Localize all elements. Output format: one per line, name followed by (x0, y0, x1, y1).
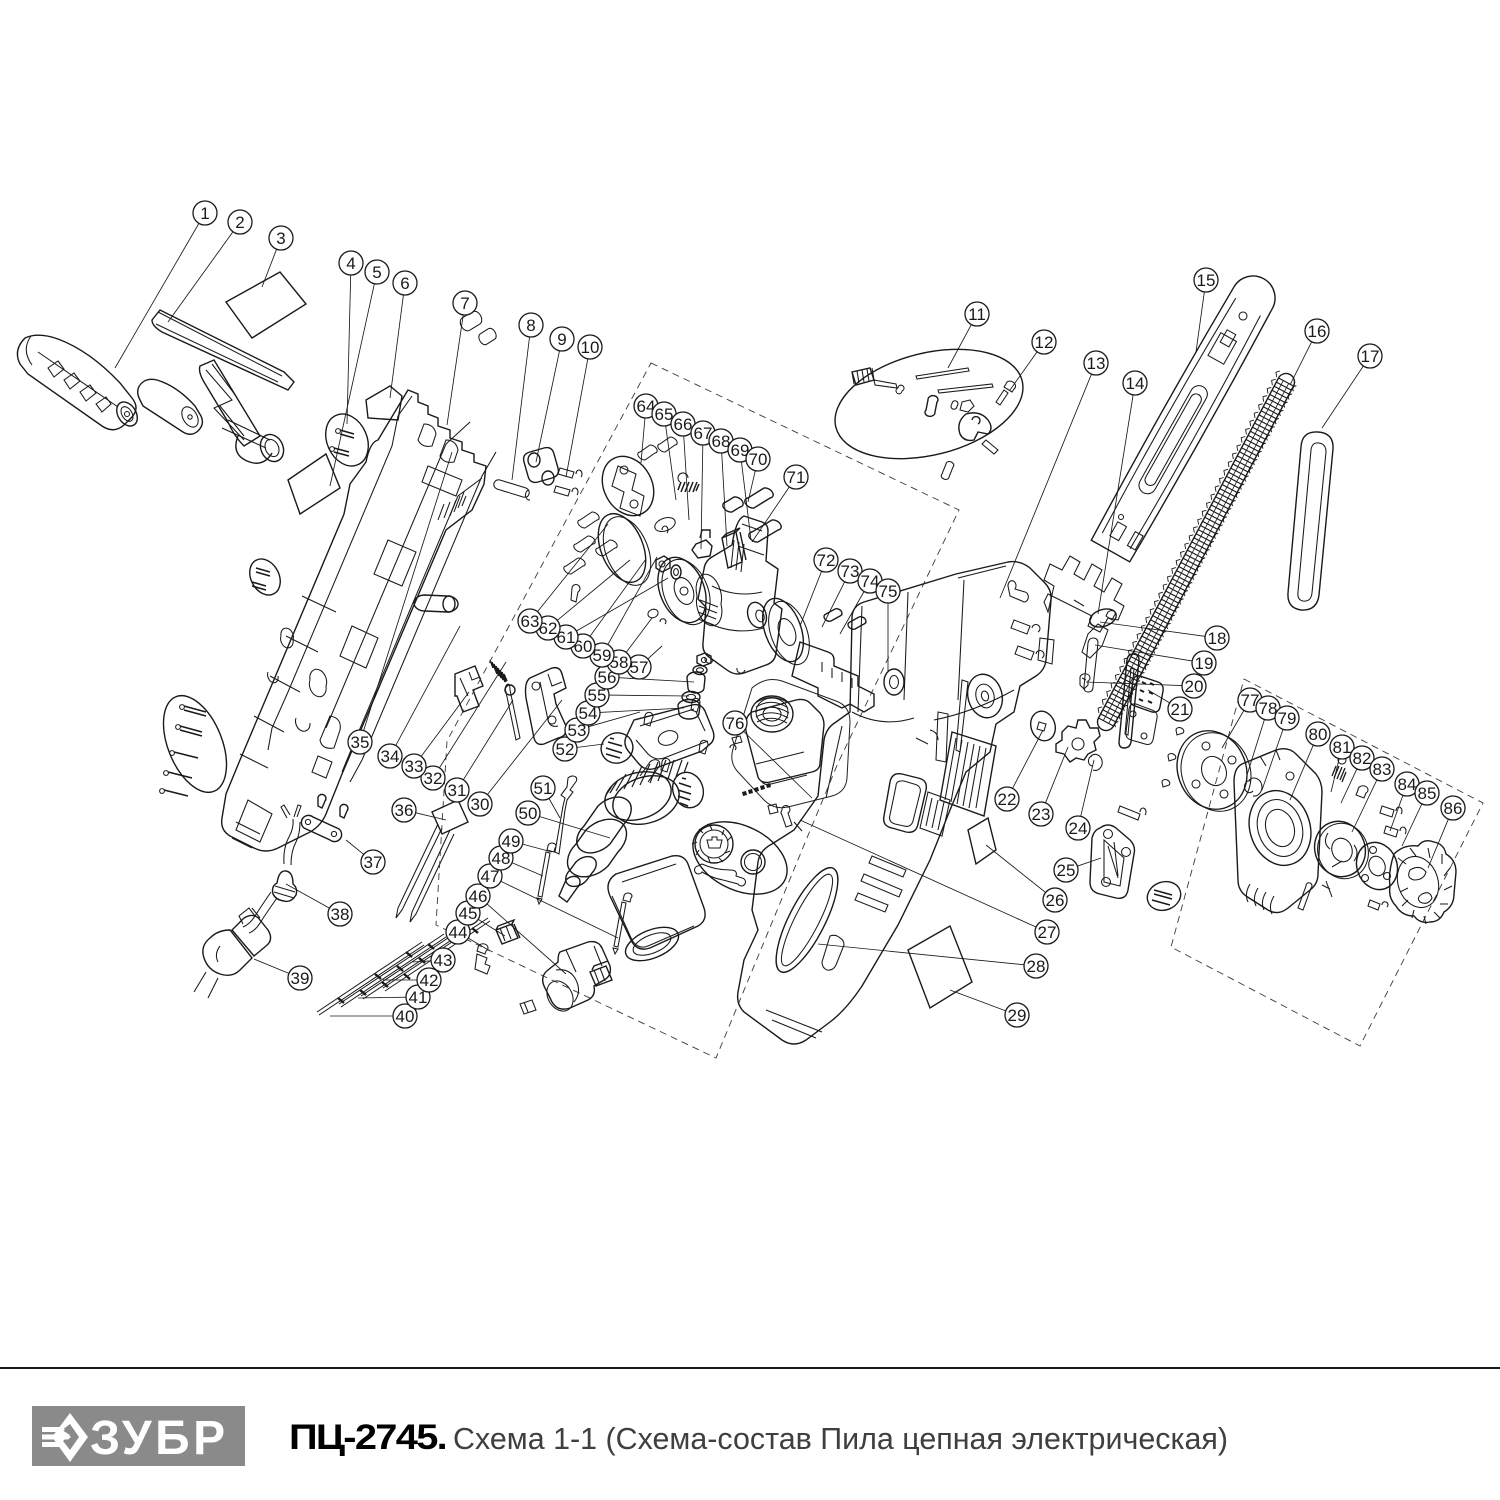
svg-text:1: 1 (200, 204, 209, 223)
svg-text:3: 3 (276, 229, 285, 248)
svg-text:36: 36 (395, 801, 414, 820)
svg-text:25: 25 (1057, 861, 1076, 880)
svg-text:11: 11 (968, 305, 986, 324)
svg-text:30: 30 (471, 795, 490, 814)
svg-text:44: 44 (449, 923, 468, 942)
svg-text:35: 35 (351, 733, 370, 752)
svg-text:86: 86 (1444, 799, 1463, 818)
svg-text:26: 26 (1046, 891, 1065, 910)
svg-text:ЗУБР: ЗУБР (90, 1412, 229, 1465)
svg-text:5: 5 (372, 263, 381, 282)
svg-text:9: 9 (557, 330, 566, 349)
svg-text:52: 52 (556, 740, 575, 759)
svg-text:6: 6 (400, 274, 409, 293)
svg-text:78: 78 (1259, 699, 1278, 718)
svg-text:29: 29 (1008, 1006, 1027, 1025)
svg-text:72: 72 (817, 551, 836, 570)
svg-text:71: 71 (787, 468, 806, 487)
svg-text:22: 22 (998, 790, 1017, 809)
svg-text:13: 13 (1087, 354, 1106, 373)
svg-text:8: 8 (526, 316, 535, 335)
svg-text:21: 21 (1171, 700, 1190, 719)
svg-text:66: 66 (674, 415, 693, 434)
svg-text:7: 7 (460, 294, 469, 313)
svg-text:70: 70 (749, 450, 768, 469)
svg-text:43: 43 (434, 951, 453, 970)
svg-text:40: 40 (396, 1007, 415, 1026)
svg-text:49: 49 (502, 832, 521, 851)
svg-text:14: 14 (1126, 374, 1145, 393)
svg-text:80: 80 (1309, 725, 1328, 744)
svg-text:42: 42 (420, 971, 439, 990)
svg-text:75: 75 (879, 582, 898, 601)
svg-text:Схема 1-1 (Схема-состав Пила ц: Схема 1-1 (Схема-состав Пила цепная элек… (453, 1421, 1228, 1456)
svg-text:32: 32 (424, 769, 443, 788)
svg-text:73: 73 (841, 562, 860, 581)
svg-text:39: 39 (291, 969, 310, 988)
svg-text:81: 81 (1333, 738, 1352, 757)
svg-text:15: 15 (1197, 271, 1216, 290)
svg-text:12: 12 (1035, 333, 1054, 352)
svg-text:51: 51 (534, 779, 553, 798)
svg-text:19: 19 (1195, 654, 1214, 673)
svg-text:20: 20 (1185, 677, 1204, 696)
svg-text:2: 2 (235, 213, 244, 232)
svg-text:24: 24 (1069, 819, 1088, 838)
svg-text:63: 63 (521, 612, 540, 631)
svg-text:85: 85 (1418, 784, 1437, 803)
svg-text:59: 59 (593, 646, 612, 665)
svg-text:23: 23 (1032, 805, 1051, 824)
svg-text:33: 33 (405, 757, 424, 776)
svg-text:57: 57 (630, 658, 649, 677)
svg-text:83: 83 (1373, 760, 1392, 779)
svg-text:ПЦ-2745.: ПЦ-2745. (289, 1418, 446, 1457)
svg-text:31: 31 (448, 781, 467, 800)
svg-text:50: 50 (519, 804, 538, 823)
svg-text:46: 46 (469, 887, 488, 906)
svg-text:18: 18 (1208, 629, 1227, 648)
svg-text:37: 37 (364, 853, 383, 872)
svg-text:4: 4 (346, 254, 355, 273)
svg-text:84: 84 (1398, 775, 1417, 794)
svg-text:17: 17 (1361, 347, 1380, 366)
svg-text:79: 79 (1278, 709, 1297, 728)
svg-text:10: 10 (581, 338, 600, 357)
svg-text:82: 82 (1353, 749, 1372, 768)
svg-text:28: 28 (1027, 957, 1046, 976)
svg-text:65: 65 (655, 405, 674, 424)
svg-text:38: 38 (331, 905, 350, 924)
svg-text:34: 34 (381, 747, 400, 766)
svg-text:76: 76 (726, 714, 745, 733)
svg-text:16: 16 (1308, 322, 1327, 341)
svg-text:27: 27 (1038, 923, 1057, 942)
